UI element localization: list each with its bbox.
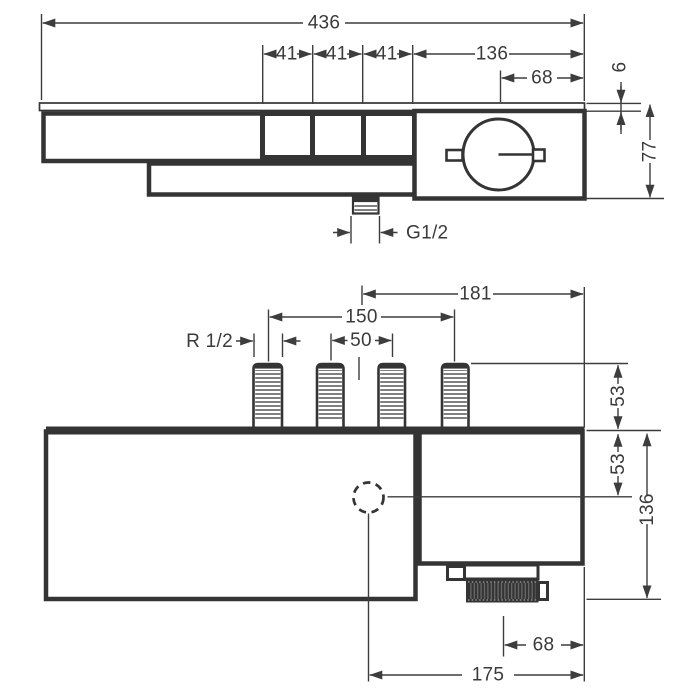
plan-thermostat-block — [420, 432, 583, 564]
knob-knurl-texture — [469, 583, 536, 599]
plan-main-body — [46, 432, 416, 600]
dim-label-segment-2: 41 — [326, 44, 348, 65]
dim-label-total-depth: 136 — [637, 493, 658, 526]
dim-outlet-offset: 175 — [370, 665, 583, 686]
dim-label-total-width: 436 — [308, 13, 341, 34]
dim-outlet-thread: G1/2 — [333, 216, 448, 244]
dim-label-connection-thread: R 1/2 — [186, 331, 233, 352]
knob-left-pin — [447, 150, 463, 161]
dim-label-outlet-thread: G1/2 — [406, 223, 448, 244]
dim-label-outlet-to-edge-upper: 181 — [459, 284, 492, 305]
front-view: 436 41 41 41 136 68 — [40, 13, 665, 244]
drawing-canvas: 436 41 41 41 136 68 — [0, 0, 700, 700]
knob-bracket — [448, 567, 465, 580]
dim-handle-offset: 68 — [501, 68, 584, 103]
dim-label-body-height: 77 — [640, 141, 661, 163]
technical-drawing: 436 41 41 41 136 68 — [0, 0, 700, 700]
plan-front-edge-strip — [46, 427, 585, 435]
outlet-nipple-threads — [355, 204, 378, 214]
dim-label-connection-pitch: 50 — [350, 330, 372, 351]
dim-body-height: 77 — [587, 105, 665, 199]
knob-right-pin — [533, 150, 545, 162]
supply-pipe-4 — [442, 364, 469, 429]
dim-connector-length: 53 — [471, 364, 661, 431]
dim-label-segment-1: 41 — [276, 44, 298, 65]
knob-clip — [539, 583, 548, 600]
dim-label-segment-3: 41 — [376, 44, 398, 65]
supply-pipe-2 — [317, 364, 344, 429]
dim-outlet-depth: 53 — [608, 434, 629, 495]
select-button-2 — [313, 114, 364, 158]
front-lower-body — [149, 164, 415, 195]
select-button-3 — [364, 114, 415, 158]
dim-label-connector-length: 53 — [608, 385, 629, 407]
dim-label-knob-offset: 68 — [533, 635, 555, 656]
supply-pipe-1 — [254, 364, 283, 429]
dim-label-thermostat-width: 136 — [476, 44, 509, 65]
select-button-1 — [263, 114, 313, 158]
dim-label-panel-thickness: 6 — [610, 62, 631, 73]
knob-stem — [464, 565, 538, 579]
outlet-nipple-cap — [352, 198, 380, 203]
dim-label-outlet-offset: 175 — [472, 665, 505, 686]
plan-view: 181 150 R 1/2 50 — [46, 284, 661, 686]
dim-connection-thread: R 1/2 — [186, 331, 300, 357]
dim-label-handle-offset: 68 — [531, 68, 553, 89]
dim-label-outlet-depth: 53 — [608, 453, 629, 475]
supply-pipe-3 — [379, 364, 406, 429]
dim-label-connection-span: 150 — [345, 307, 378, 328]
dim-panel-thickness: 6 — [587, 62, 642, 134]
